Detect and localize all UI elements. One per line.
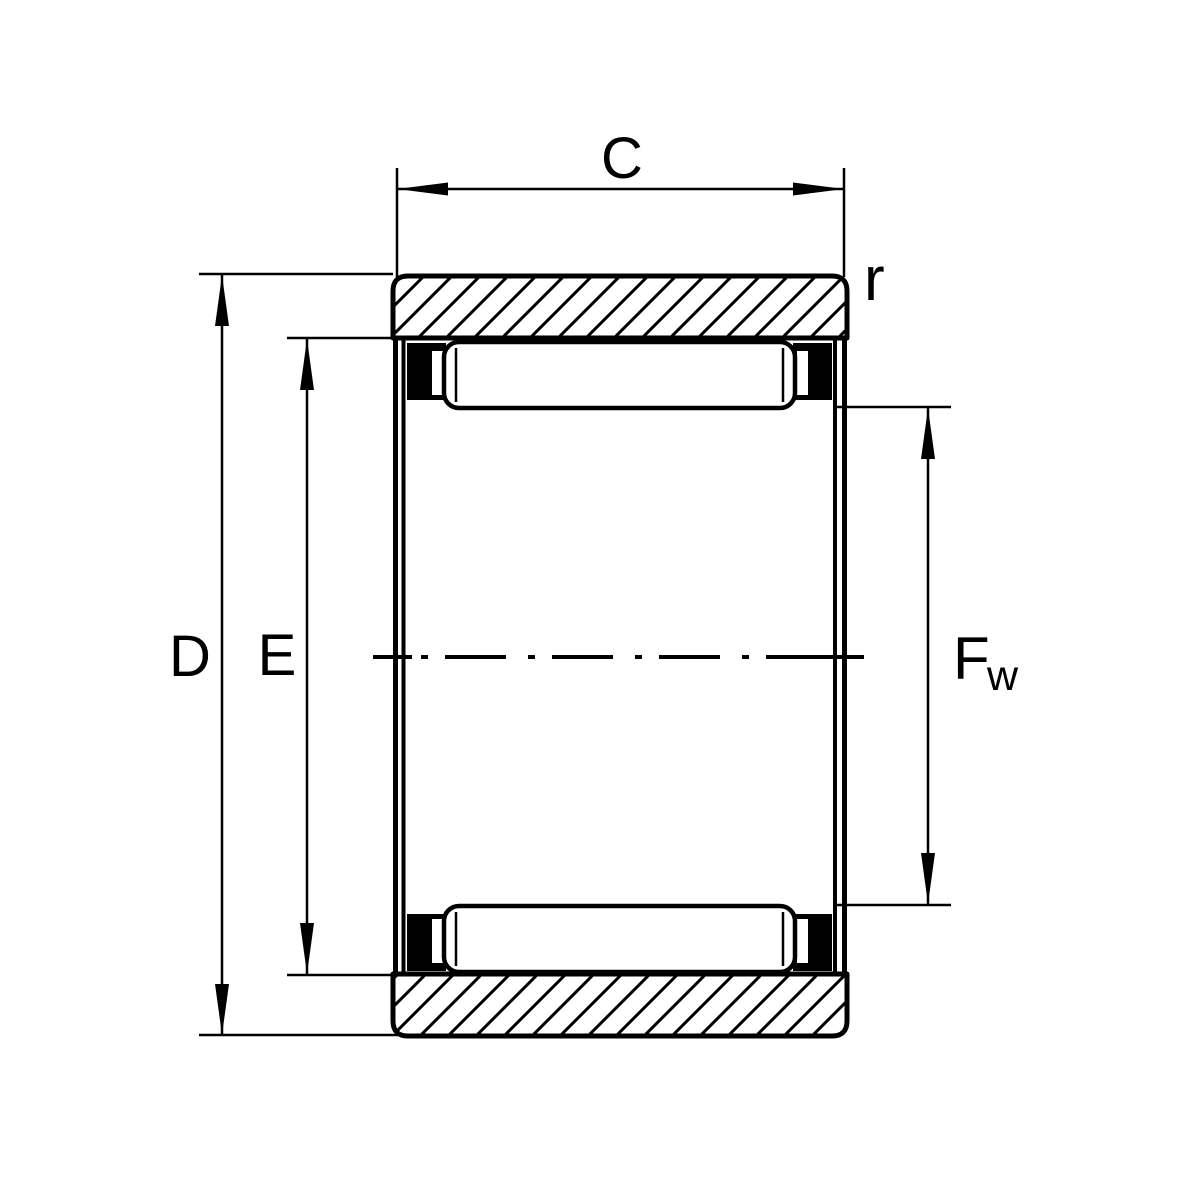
bearing-drawing: C r D E F w bbox=[0, 0, 1201, 1200]
top-roller-row bbox=[407, 342, 832, 408]
cage-slot-bottom-left bbox=[432, 919, 443, 963]
c-arrow-right bbox=[793, 183, 844, 196]
drawing-canvas: C r D E F w bbox=[0, 0, 1201, 1200]
e-label: E bbox=[258, 623, 297, 688]
cage-slot-top-right bbox=[797, 351, 808, 395]
cage-slot-top-left bbox=[432, 351, 443, 395]
bottom-roller-row bbox=[407, 906, 832, 972]
outer-ring-bottom-section bbox=[393, 974, 847, 1036]
d-arrow-up bbox=[215, 275, 229, 326]
fw-arrow-up bbox=[921, 408, 935, 459]
fw-label-w-subscript: w bbox=[986, 652, 1019, 700]
e-arrow-up bbox=[300, 339, 314, 390]
dimension-e: E bbox=[258, 338, 393, 975]
d-arrow-down bbox=[215, 984, 229, 1035]
needle-roller-bottom bbox=[444, 906, 795, 972]
dimension-c: C bbox=[397, 126, 844, 277]
needle-roller-top bbox=[444, 342, 795, 408]
fw-label-f: F bbox=[953, 625, 990, 692]
outer-ring-top-section bbox=[393, 276, 847, 338]
d-label: D bbox=[169, 624, 211, 689]
fw-arrow-down bbox=[921, 853, 935, 904]
r-label: r bbox=[864, 245, 885, 314]
c-arrow-left bbox=[397, 183, 448, 196]
cage-slot-bottom-right bbox=[797, 919, 808, 963]
e-arrow-down bbox=[300, 923, 314, 974]
c-label: C bbox=[601, 126, 643, 191]
